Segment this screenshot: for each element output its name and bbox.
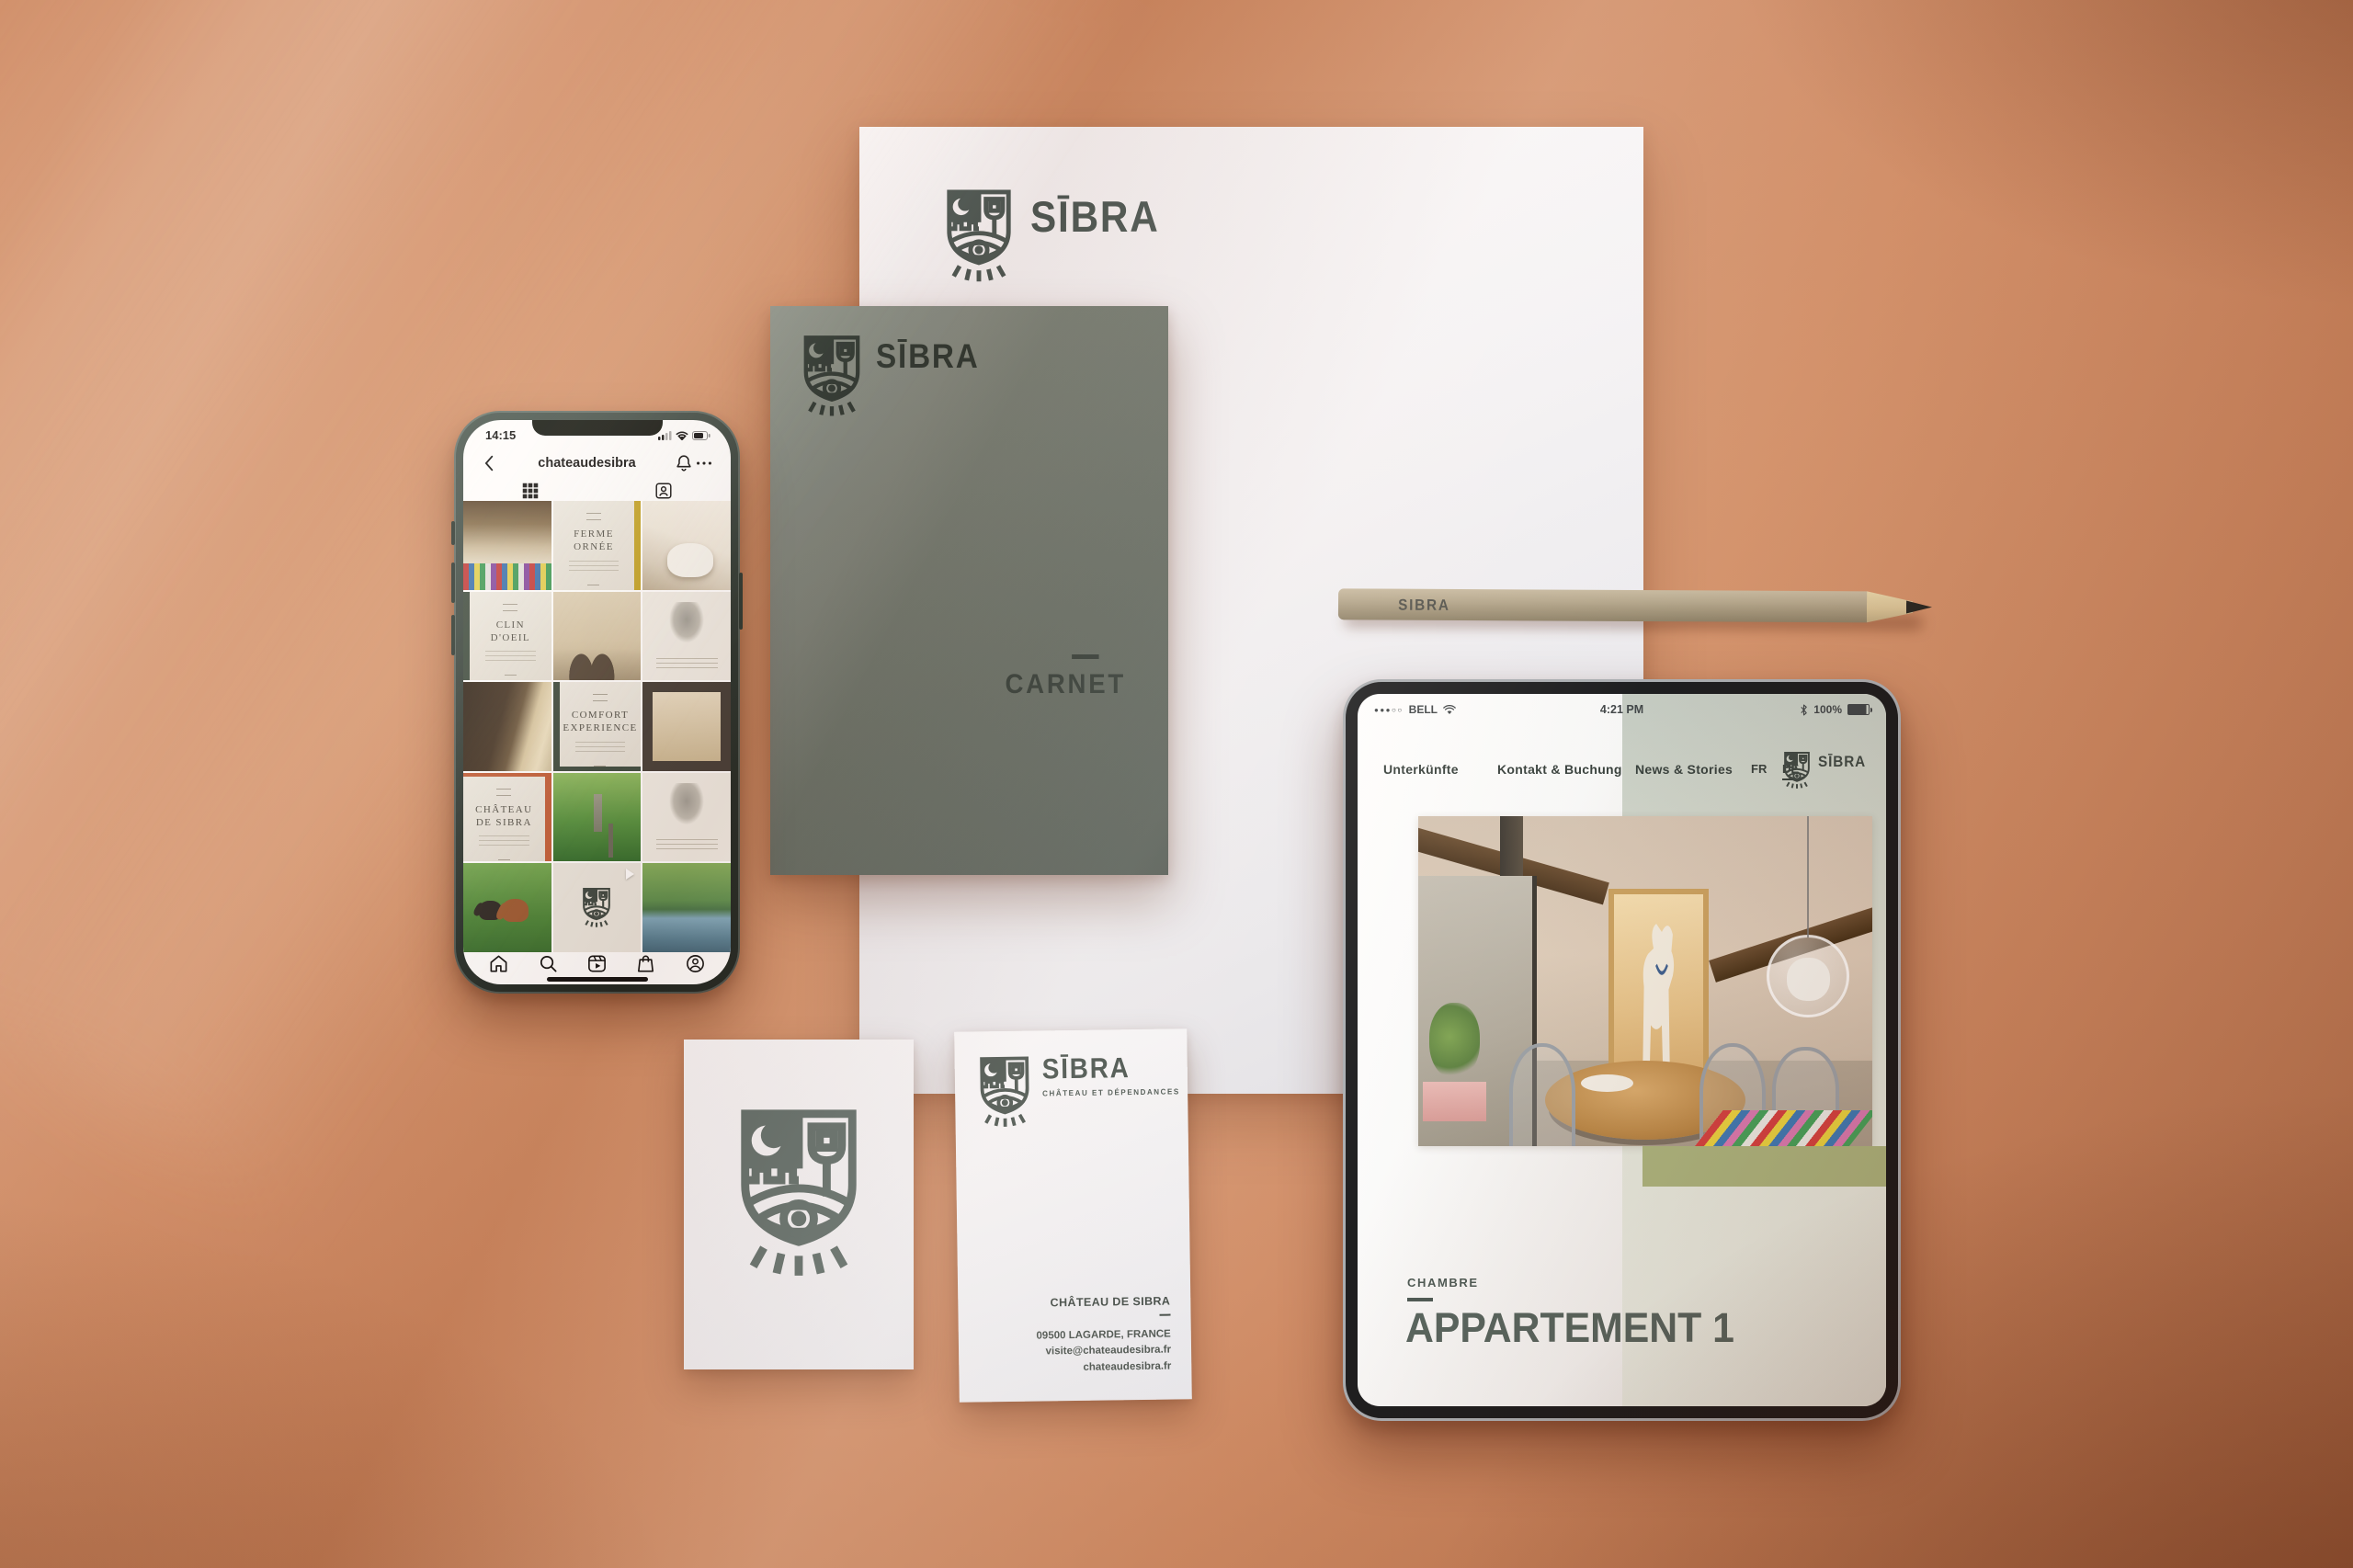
business-card-back bbox=[684, 1040, 914, 1369]
eyebrow-dash bbox=[1407, 1298, 1433, 1301]
site-logo[interactable]: SĪBRA bbox=[1781, 751, 1871, 790]
macron-dash bbox=[1072, 654, 1098, 659]
wifi-icon bbox=[676, 431, 688, 440]
tablet-status-bar: ●●●○○ BELL 4:21 PM 100% bbox=[1358, 701, 1886, 718]
post-tile[interactable] bbox=[642, 501, 731, 590]
smartphone: 14:15 chateaudesibra bbox=[454, 411, 740, 994]
post-title: CLIN D'OEIL bbox=[470, 619, 551, 645]
post-tile[interactable] bbox=[553, 592, 642, 681]
tagged-icon bbox=[654, 481, 674, 501]
chair bbox=[1509, 1043, 1575, 1146]
sibra-wordmark: SĪBRA bbox=[1030, 195, 1160, 238]
sibra-crest-icon bbox=[798, 334, 866, 418]
brand-tagline: CHÂTEAU ET DÉPENDANCES bbox=[1042, 1086, 1180, 1097]
profile-icon[interactable] bbox=[685, 953, 706, 974]
post-tile[interactable]: CLIN D'OEIL bbox=[463, 592, 551, 681]
hero-photo-dining-room-horse bbox=[1418, 816, 1872, 1146]
language-fr[interactable]: FR bbox=[1751, 762, 1767, 776]
phone-notch bbox=[532, 420, 663, 436]
play-icon bbox=[626, 869, 634, 880]
nav-news-stories[interactable]: News & Stories bbox=[1635, 762, 1733, 777]
shop-icon[interactable] bbox=[635, 953, 656, 974]
notebook-carnet: SĪBRA CARNET bbox=[770, 306, 1168, 875]
back-chevron-icon[interactable] bbox=[480, 453, 500, 473]
ornament bbox=[496, 789, 511, 796]
notebook-title: CARNET bbox=[1005, 669, 1126, 700]
page-eyebrow: CHAMBRE bbox=[1407, 1276, 1479, 1301]
battery-icon bbox=[1847, 704, 1870, 715]
post-tile[interactable]: COMFORT EXPERIENCE bbox=[553, 682, 642, 771]
post-caption-lines bbox=[485, 651, 536, 663]
more-options-icon[interactable] bbox=[694, 453, 714, 473]
ornament bbox=[586, 513, 601, 520]
bluetooth-icon bbox=[1800, 704, 1808, 716]
ornament bbox=[505, 670, 517, 676]
ornament bbox=[593, 694, 608, 701]
cellular-signal-icon bbox=[658, 431, 672, 440]
phone-mute-switch bbox=[451, 521, 455, 545]
flower-cart bbox=[1423, 1040, 1486, 1140]
address-line: 09500 LAGARDE, FRANCE bbox=[1036, 1326, 1171, 1345]
sibra-crest-icon bbox=[580, 887, 613, 928]
post-tile-logo-video[interactable] bbox=[553, 863, 642, 952]
sibra-logo-lockup: SĪBRA bbox=[940, 187, 1174, 284]
home-indicator[interactable] bbox=[463, 974, 731, 984]
etching-illustration bbox=[667, 783, 706, 827]
post-caption-lines bbox=[569, 561, 620, 573]
flower-bouquet bbox=[1429, 1003, 1480, 1078]
sibra-crest-icon bbox=[940, 187, 1017, 284]
ornament bbox=[498, 855, 510, 860]
profile-header: chateaudesibra bbox=[463, 442, 731, 481]
sibra-crest-icon bbox=[1781, 751, 1813, 790]
sibra-crest-icon bbox=[729, 1106, 869, 1280]
pencil-brand-label: SIBRA bbox=[1398, 597, 1450, 615]
tab-tagged[interactable] bbox=[597, 481, 732, 501]
horse-silhouette bbox=[502, 899, 529, 922]
olive-color-block bbox=[1643, 1146, 1886, 1187]
profile-username: chateaudesibra bbox=[500, 456, 674, 471]
sibra-wordmark: SĪBRA bbox=[1042, 1052, 1173, 1083]
pink-cloth bbox=[1423, 1082, 1486, 1121]
post-tile[interactable] bbox=[463, 863, 551, 952]
post-tile[interactable] bbox=[642, 773, 731, 862]
tab-posts-grid[interactable] bbox=[463, 481, 597, 501]
post-tile[interactable]: CHÂTEAU DE SIBRA bbox=[463, 773, 551, 862]
ornament bbox=[503, 604, 517, 611]
site-navigation: Unterkünfte Kontakt & Buchung News & Sto… bbox=[1358, 745, 1886, 793]
post-title: COMFORT EXPERIENCE bbox=[555, 709, 641, 735]
post-caption-lines bbox=[575, 742, 626, 754]
etching-illustration bbox=[667, 602, 706, 646]
hanging-bubble-chair bbox=[1767, 935, 1849, 1017]
battery-icon bbox=[692, 431, 710, 440]
home-icon[interactable] bbox=[488, 953, 509, 974]
sibra-logo-lockup: SĪBRA CHÂTEAU ET DÉPENDANCES bbox=[975, 1052, 1188, 1129]
striped-rug bbox=[1695, 1110, 1872, 1146]
page-title: APPARTEMENT 1 bbox=[1405, 1304, 1734, 1352]
battery-percent: 100% bbox=[1813, 703, 1842, 716]
post-caption-lines bbox=[656, 839, 718, 851]
sibra-crest-icon bbox=[975, 1055, 1035, 1130]
sibra-wordmark: SĪBRA bbox=[876, 339, 980, 373]
divider-dash bbox=[1159, 1313, 1170, 1315]
search-icon[interactable] bbox=[538, 953, 559, 974]
profile-tabs bbox=[463, 481, 731, 501]
branded-pencil: SIBRA bbox=[1338, 588, 1934, 622]
post-title: CHÂTEAU DE SIBRA bbox=[463, 803, 545, 830]
reels-icon[interactable] bbox=[586, 953, 608, 974]
post-caption-lines bbox=[656, 658, 718, 670]
email-line: visite@chateaudesibra.fr bbox=[1037, 1343, 1172, 1361]
phone-volume-down-button bbox=[451, 615, 455, 655]
phone-screen: 14:15 chateaudesibra bbox=[463, 420, 731, 984]
post-tile[interactable] bbox=[463, 682, 551, 771]
post-tile[interactable] bbox=[642, 592, 731, 681]
company-name: CHÂTEAU DE SIBRA bbox=[1036, 1294, 1171, 1309]
grid-icon bbox=[520, 481, 540, 501]
post-tile[interactable] bbox=[553, 773, 642, 862]
post-tile[interactable] bbox=[463, 501, 551, 590]
pencil-wood-tip bbox=[1867, 591, 1913, 622]
nav-unterkuenfte[interactable]: Unterkünfte bbox=[1383, 762, 1459, 777]
nav-kontakt-buchung[interactable]: Kontakt & Buchung bbox=[1497, 762, 1622, 777]
post-caption-lines bbox=[479, 835, 529, 847]
tablet: ●●●○○ BELL 4:21 PM 100% Unterkünfte Kont… bbox=[1343, 679, 1901, 1421]
phone-bottom-nav bbox=[463, 952, 731, 974]
contact-block: CHÂTEAU DE SIBRA 09500 LAGARDE, FRANCE v… bbox=[1036, 1294, 1172, 1377]
phone-clock: 14:15 bbox=[485, 428, 516, 442]
phone-power-button bbox=[739, 573, 743, 630]
post-tile[interactable] bbox=[642, 682, 731, 771]
posts-grid: FERME ORNÉE CLIN D'OEIL bbox=[463, 501, 731, 952]
website-line: chateaudesibra.fr bbox=[1037, 1359, 1172, 1378]
ornament bbox=[594, 761, 606, 767]
post-tile[interactable]: FERME ORNÉE bbox=[553, 501, 642, 590]
business-card-front: SĪBRA CHÂTEAU ET DÉPENDANCES CHÂTEAU DE … bbox=[954, 1028, 1192, 1402]
post-title: FERME ORNÉE bbox=[553, 528, 635, 554]
pencil-graphite-tip bbox=[1906, 601, 1932, 614]
tablet-screen: ●●●○○ BELL 4:21 PM 100% Unterkünfte Kont… bbox=[1358, 694, 1886, 1406]
scene: SĪBRA SĪBRA CARNET SIBRA 14:15 bbox=[0, 0, 2353, 1568]
post-tile[interactable] bbox=[642, 863, 731, 952]
phone-volume-up-button bbox=[451, 562, 455, 603]
ornament bbox=[587, 580, 599, 585]
sibra-wordmark: SĪBRA bbox=[1818, 754, 1866, 769]
sibra-logo-lockup: SĪBRA bbox=[798, 334, 991, 418]
bell-icon[interactable] bbox=[674, 453, 694, 473]
